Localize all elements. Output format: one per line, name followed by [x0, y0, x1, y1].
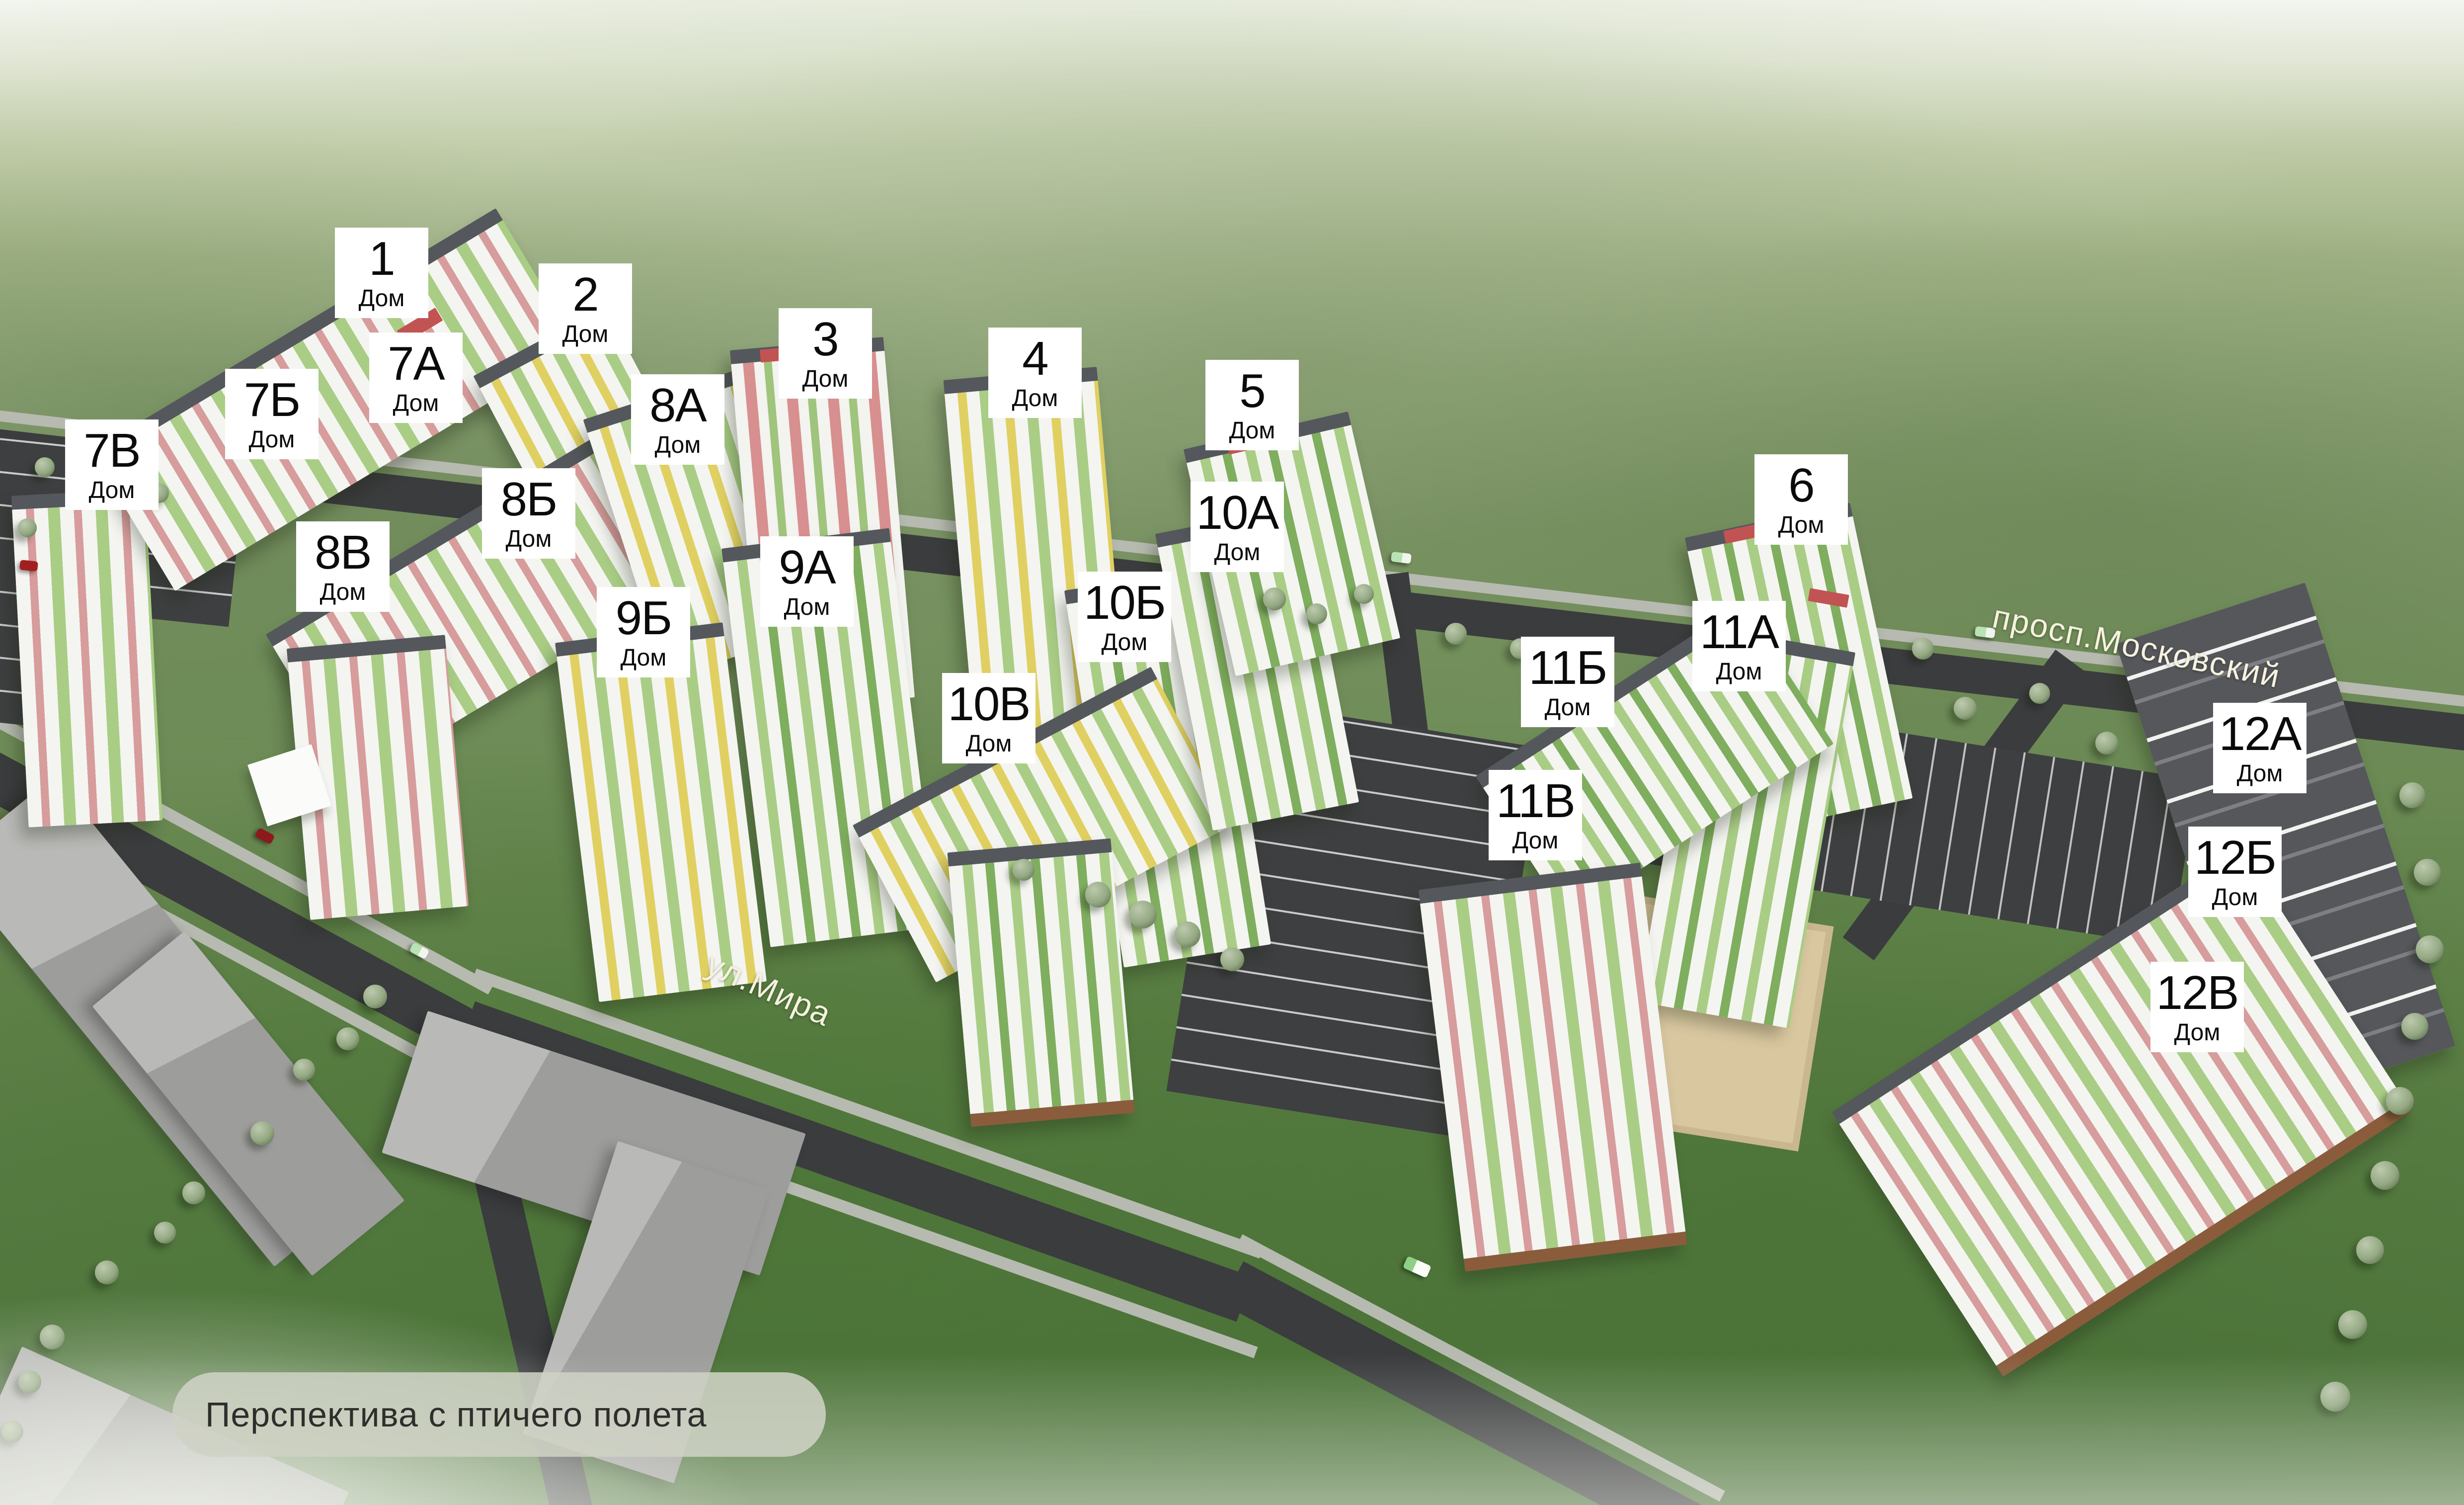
building-number: 11А: [1700, 608, 1778, 656]
building-sublabel: Дом: [89, 479, 135, 502]
tree-icon: [18, 518, 37, 537]
building-number: 8Б: [501, 476, 556, 523]
building-label-8А: 8АДом: [631, 374, 724, 465]
tree-icon: [1129, 901, 1157, 928]
building-sublabel: Дом: [1102, 631, 1148, 655]
building-label-7А: 7АДом: [369, 333, 463, 423]
tree-icon: [250, 1121, 274, 1145]
building-sublabel: Дом: [1012, 387, 1058, 411]
building-number: 8В: [315, 529, 371, 577]
building-sublabel: Дом: [621, 646, 667, 670]
building-label-7В: 7ВДом: [65, 419, 159, 510]
tree-icon: [1175, 921, 1200, 947]
building-11v: [1419, 862, 1687, 1271]
tree-icon: [363, 985, 387, 1008]
building-number: 9А: [779, 544, 835, 591]
tree-icon: [2401, 1013, 2428, 1040]
tree-icon: [1354, 584, 1374, 604]
building-number: 12Б: [2194, 834, 2276, 882]
building-sublabel: Дом: [1716, 660, 1762, 684]
building-sublabel: Дом: [562, 323, 609, 346]
sidewalk-mira-north-3: [1237, 1234, 1725, 1502]
tree-icon: [2338, 1310, 2367, 1339]
road-mira-segment-3: [1221, 1261, 1717, 1505]
tree-icon: [293, 1059, 315, 1081]
building-sublabel: Дом: [966, 732, 1012, 756]
tree-icon: [40, 1325, 65, 1349]
building-label-9Б: 9БДом: [597, 587, 690, 677]
building-sublabel: Дом: [802, 367, 849, 391]
building-sublabel: Дом: [506, 527, 552, 551]
building-sublabel: Дом: [1545, 696, 1591, 720]
building-10v: [947, 838, 1134, 1127]
tree-icon: [18, 1370, 41, 1393]
building-sublabel: Дом: [249, 428, 295, 452]
tree-icon: [1013, 859, 1034, 881]
building-number: 12В: [2156, 969, 2238, 1017]
building-label-11Б: 11БДом: [1521, 637, 1614, 727]
building-label-1: 1Дом: [335, 228, 428, 318]
car-icon: [1391, 552, 1412, 564]
building-number: 7А: [388, 340, 444, 388]
building-sublabel: Дом: [393, 392, 439, 416]
building-label-6: 6Дом: [1754, 454, 1848, 545]
tree-icon: [1263, 587, 1286, 610]
tree-icon: [336, 1027, 359, 1050]
tree-icon: [35, 457, 55, 477]
tree-icon: [2356, 1236, 2384, 1264]
building-sublabel: Дом: [2237, 762, 2283, 786]
building-label-12Б: 12БДом: [2188, 827, 2282, 917]
tree-icon: [95, 1260, 119, 1284]
building-label-10Б: 10БДом: [1078, 572, 1171, 662]
car-icon: [1403, 1256, 1431, 1278]
car-icon: [19, 560, 38, 572]
building-number: 3: [812, 316, 838, 363]
masterplan-render: ул.Мира просп.Московский 1Дом2Дом3Дом4До…: [0, 0, 2464, 1505]
tree-icon: [1220, 947, 1244, 971]
building-sublabel: Дом: [2212, 886, 2258, 910]
tree-icon: [2095, 732, 2118, 754]
tree-icon: [1306, 603, 1327, 624]
building-7v: [11, 489, 163, 827]
tree-icon: [1912, 638, 1934, 660]
tree-icon: [154, 1222, 176, 1244]
building-number: 8А: [649, 382, 706, 429]
building-sublabel: Дом: [320, 581, 366, 604]
building-label-3: 3Дом: [779, 308, 872, 399]
tree-icon: [1, 1421, 23, 1442]
tree-icon: [2414, 859, 2441, 886]
building-number: 6: [1788, 462, 1814, 509]
tree-icon: [1085, 882, 1111, 908]
building-9b: [555, 622, 767, 1002]
building-label-8В: 8ВДом: [296, 521, 390, 612]
tree-icon: [1445, 623, 1467, 645]
building-label-12А: 12АДом: [2213, 703, 2306, 793]
building-number: 10В: [948, 680, 1030, 728]
tree-icon: [1954, 697, 1977, 720]
building-label-9А: 9АДом: [760, 536, 854, 627]
caption-pill: Перспектива с птичего полета: [172, 1372, 826, 1457]
car-icon: [254, 828, 275, 845]
caption-text: Перспектива с птичего полета: [205, 1395, 707, 1434]
building-number: 11В: [1496, 777, 1575, 825]
building-label-2: 2Дом: [539, 263, 632, 354]
building-sublabel: Дом: [1229, 419, 1275, 443]
building-label-11В: 11ВДом: [1489, 770, 1582, 860]
building-sublabel: Дом: [1778, 513, 1825, 537]
tree-icon: [2399, 782, 2425, 808]
building-number: 1: [369, 235, 394, 283]
building-sublabel: Дом: [655, 433, 701, 457]
building-sublabel: Дом: [1512, 829, 1559, 853]
tree-icon: [2416, 935, 2444, 963]
building-label-8Б: 8БДом: [482, 468, 575, 559]
tree-icon: [182, 1181, 205, 1204]
building-number: 12А: [2219, 710, 2301, 758]
building-label-11А: 11АДом: [1692, 601, 1786, 691]
building-sublabel: Дом: [784, 595, 830, 619]
tree-icon: [2371, 1161, 2399, 1190]
building-label-7Б: 7БДом: [225, 369, 318, 459]
building-number: 10А: [1196, 489, 1278, 537]
building-label-5: 5Дом: [1205, 360, 1299, 450]
building-sublabel: Дом: [359, 287, 405, 311]
street-label-mira: ул.Мира: [701, 945, 837, 1033]
building-label-10В: 10ВДом: [942, 673, 1035, 763]
building-number: 5: [1239, 367, 1265, 415]
building-label-4: 4Дом: [988, 328, 1082, 418]
building-number: 11Б: [1529, 644, 1607, 692]
building-number: 4: [1022, 335, 1047, 383]
building-number: 2: [572, 271, 598, 319]
building-sublabel: Дом: [1214, 541, 1261, 565]
building-number: 10Б: [1084, 579, 1165, 627]
tree-icon: [2386, 1087, 2414, 1115]
tree-icon: [2029, 683, 2050, 704]
tree-icon: [2320, 1382, 2350, 1412]
building-number: 7Б: [244, 376, 300, 424]
building-number: 7В: [83, 427, 140, 475]
building-number: 9Б: [616, 594, 671, 642]
building-sublabel: Дом: [2174, 1021, 2221, 1045]
building-label-10А: 10АДом: [1191, 482, 1284, 572]
building-label-12В: 12ВДом: [2150, 962, 2244, 1052]
